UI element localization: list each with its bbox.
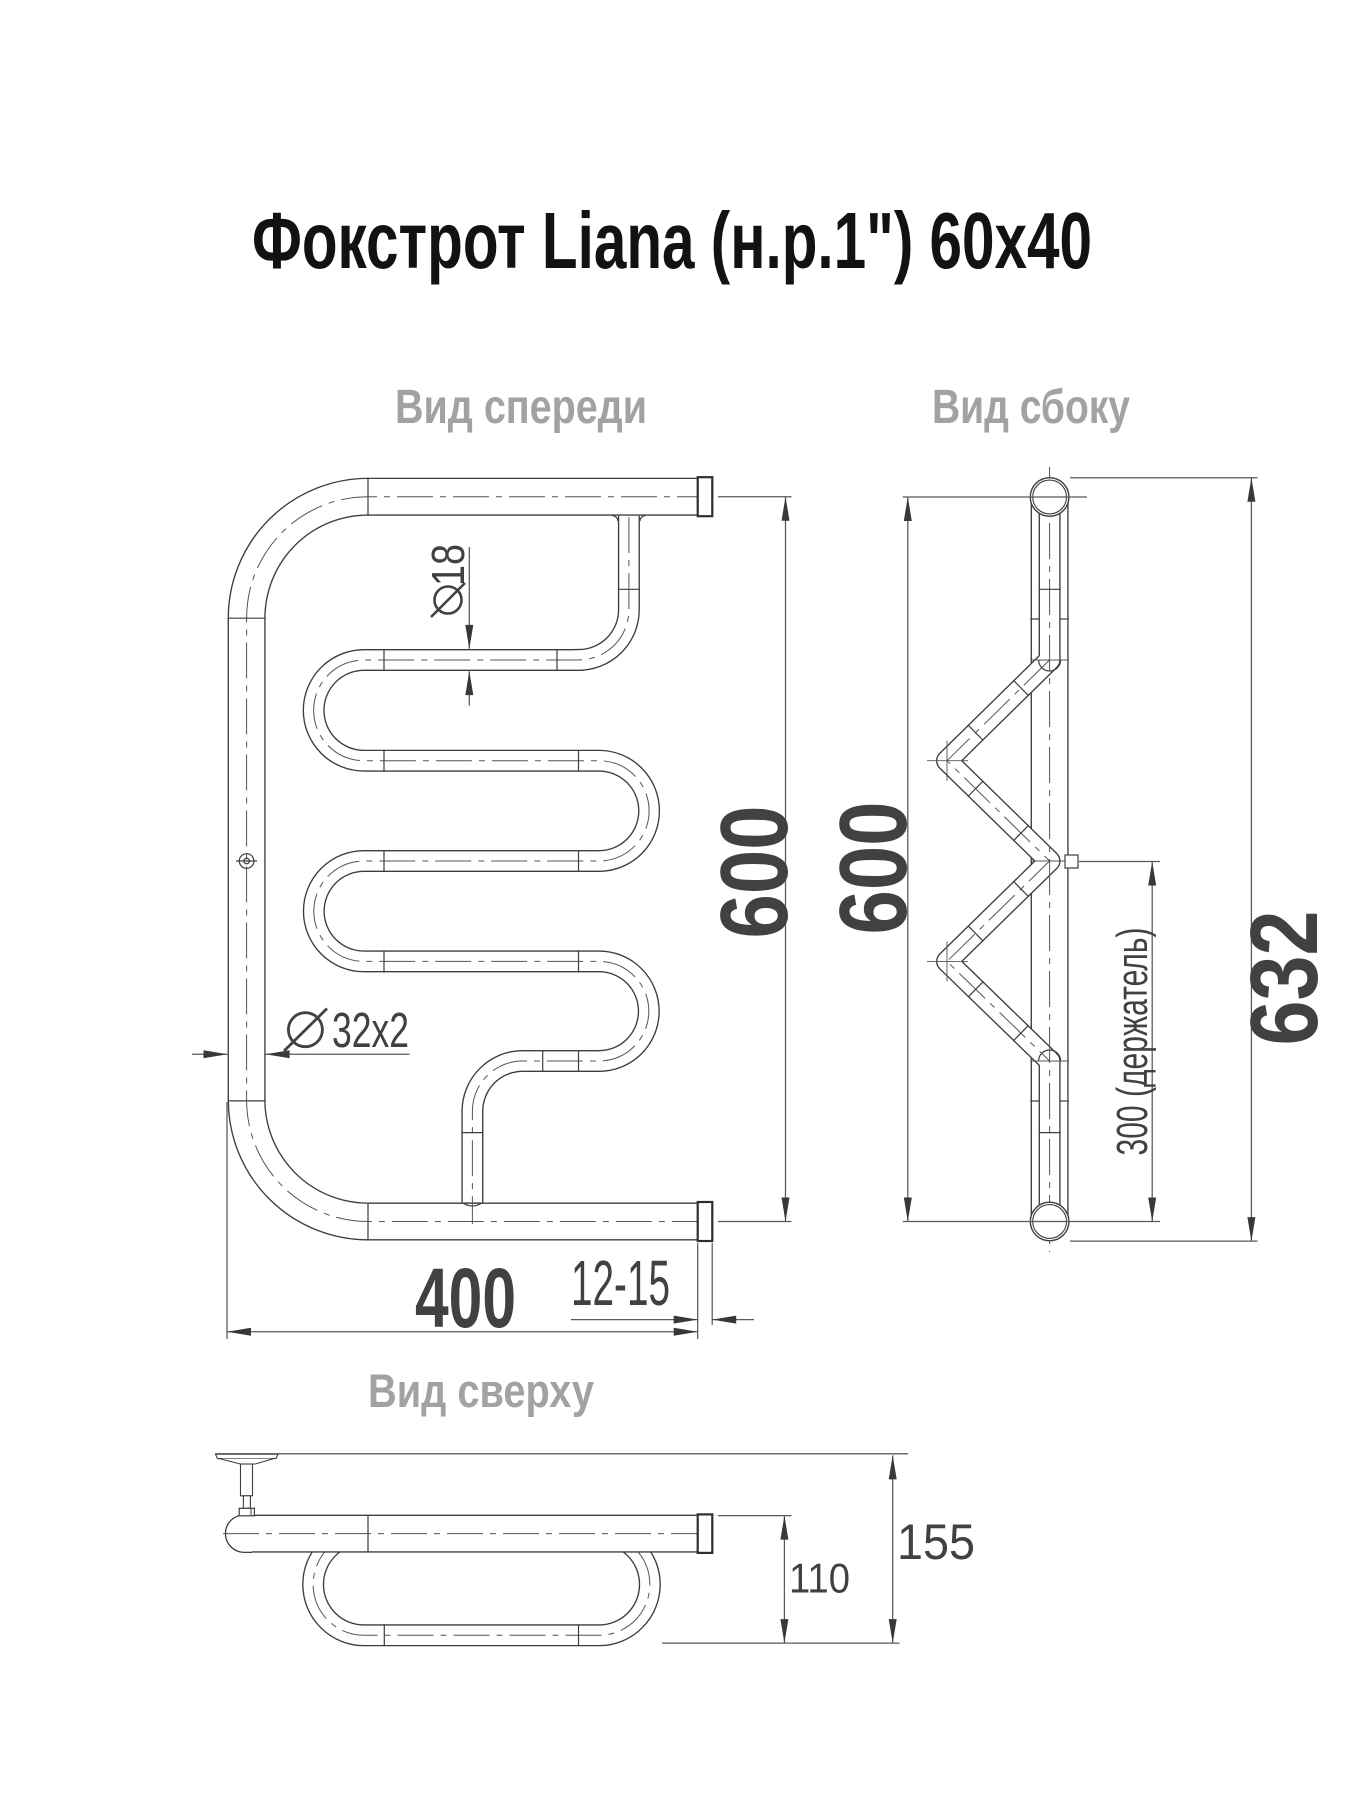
svg-text:300 (держатель): 300 (держатель) [1108,928,1157,1156]
svg-text:Вид спереди: Вид спереди [395,381,647,434]
svg-text:18: 18 [422,544,474,586]
svg-text:Вид сбоку: Вид сбоку [932,381,1130,434]
svg-text:155: 155 [897,1514,975,1570]
svg-text:400: 400 [415,1251,516,1345]
svg-text:110: 110 [789,1555,850,1602]
svg-text:Вид сверху: Вид сверху [368,1364,594,1417]
svg-text:32x2: 32x2 [332,1004,409,1058]
svg-text:600: 600 [820,802,927,935]
svg-text:12-15: 12-15 [571,1247,670,1319]
svg-text:600: 600 [701,806,808,939]
svg-text:632: 632 [1231,911,1338,1046]
svg-text:Фокстрот Liana (н.р.1") 60x40: Фокстрот Liana (н.р.1") 60x40 [252,196,1092,285]
